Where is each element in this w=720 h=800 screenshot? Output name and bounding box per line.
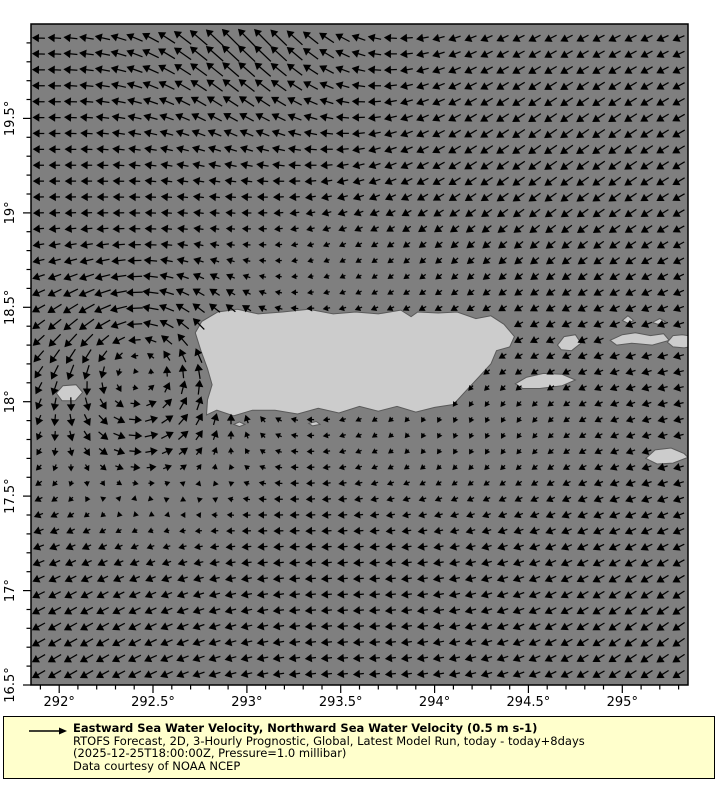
y-tick-label: 19°: [3, 201, 18, 224]
x-tick-label: 294.5°: [507, 695, 551, 710]
velocity-arrow: [405, 418, 409, 422]
landmass-tortola-edge: [667, 335, 697, 348]
sea-water-velocity-map: 292°292.5°293°293.5°294°294.5°295°16.5°1…: [0, 0, 720, 712]
y-tick-label: 17°: [3, 579, 18, 602]
legend-timestamp: (2025-12-25T18:00:00Z, Pressure=1.0 mill…: [73, 747, 585, 760]
x-tick-label: 295°: [607, 695, 638, 710]
velocity-arrow: [69, 497, 73, 501]
velocity-arrow: [485, 465, 489, 469]
x-tick-label: 294°: [419, 695, 450, 710]
reference-arrow-head: [59, 728, 67, 735]
velocity-arrow: [421, 465, 425, 469]
velocity-arrow: [389, 434, 393, 438]
velocity-arrow: [437, 466, 441, 470]
reference-arrow-icon: [29, 726, 67, 736]
legend-title: Eastward Sea Water Velocity, Northward S…: [73, 722, 585, 735]
velocity-arrow: [422, 450, 426, 454]
x-tick-label: 292.5°: [131, 695, 175, 710]
velocity-arrow: [101, 513, 105, 517]
legend-credit: Data courtesy of NOAA NCEP: [73, 760, 585, 773]
x-tick-label: 293.5°: [319, 695, 363, 710]
y-tick-label: 18.5°: [3, 290, 18, 325]
y-tick-label: 18°: [3, 390, 18, 413]
x-tick-label: 292°: [44, 695, 75, 710]
velocity-arrow: [469, 465, 473, 469]
legend-box: Eastward Sea Water Velocity, Northward S…: [3, 716, 715, 779]
velocity-arrow: [406, 434, 410, 438]
velocity-arrow: [245, 466, 249, 470]
velocity-arrow: [453, 465, 457, 469]
velocity-arrow: [389, 449, 393, 453]
y-tick-label: 19.5°: [3, 101, 18, 136]
y-tick-label: 16.5°: [3, 667, 18, 702]
legend-text: Eastward Sea Water Velocity, Northward S…: [73, 722, 585, 772]
velocity-arrow: [405, 450, 409, 454]
y-tick-label: 17.5°: [3, 478, 18, 513]
velocity-arrow: [389, 418, 393, 422]
page: 292°292.5°293°293.5°294°294.5°295°16.5°1…: [0, 0, 720, 800]
x-tick-label: 293°: [231, 695, 262, 710]
